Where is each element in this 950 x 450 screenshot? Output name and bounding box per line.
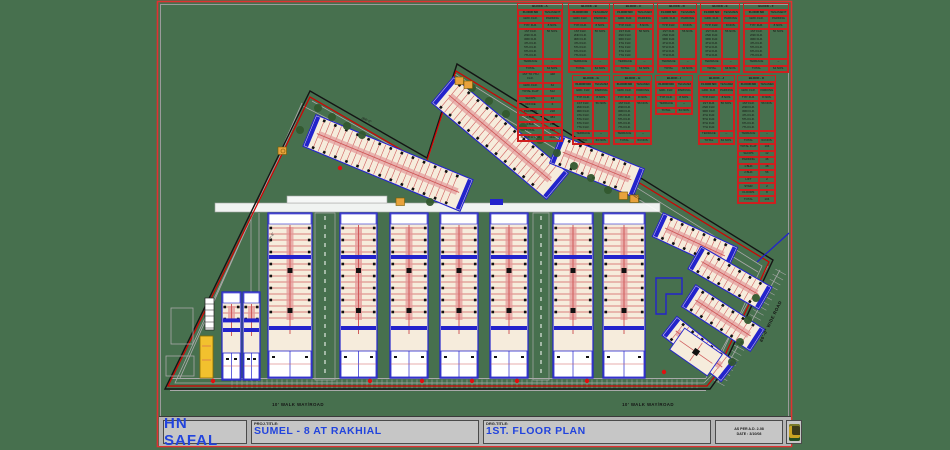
- title-block: HN SAFAL PROJ.TITLE: SUMEL - 8 AT RAKHIA…: [159, 416, 791, 446]
- emblem-icon: [789, 424, 800, 441]
- road-label: 10' WALK WAY/ROAD: [622, 402, 674, 407]
- tree-icon: [728, 358, 736, 366]
- tree-icon: [752, 294, 760, 302]
- tree-icon: [426, 198, 434, 206]
- building-row: [603, 213, 645, 378]
- tree-icon: [519, 123, 527, 131]
- project-title: SUMEL - 8 AT RAKHIAL: [252, 426, 478, 438]
- red-marker-dot: [368, 379, 372, 383]
- tree-icon: [736, 338, 744, 346]
- building-row: [222, 292, 241, 380]
- building-row: [243, 292, 260, 380]
- tree-icon: [296, 126, 304, 134]
- tree-icon: [314, 104, 322, 112]
- drawing-title: 1ST. FLOOR PLAN: [484, 426, 710, 438]
- brand-text: HN SAFAL: [164, 415, 246, 449]
- company-logo: HN SAFAL: [163, 420, 247, 444]
- tree-icon: [358, 131, 366, 139]
- building-row: [268, 213, 312, 378]
- buildings: [166, 77, 772, 382]
- project-title-cell: PROJ.TITLE: SUMEL - 8 AT RAKHIAL: [251, 420, 479, 444]
- building-row-diagonal: [550, 135, 645, 197]
- road-label: 10' WALK WAY/ROAD: [272, 402, 324, 407]
- building-row: [553, 213, 593, 378]
- road-label: 60'-0" WIDE ROAD: [759, 300, 783, 343]
- tree-icon: [587, 174, 595, 182]
- tree-icon: [536, 136, 544, 144]
- red-marker-dot: [211, 379, 215, 383]
- tree-icon: [744, 316, 752, 324]
- date-note: DATE : 3/10/08: [716, 432, 782, 437]
- drawing-title-cell: DRG.TITLE: 1ST. FLOOR PLAN: [483, 420, 711, 444]
- building-row: [490, 213, 528, 378]
- tree-icon: [485, 97, 493, 105]
- tree-icon: [570, 162, 578, 170]
- building-row: [390, 213, 428, 378]
- revision-note-cell: AS PER A.D. 2-08 DATE : 3/10/08: [715, 420, 783, 444]
- red-marker-dot: [470, 379, 474, 383]
- company-emblem: [786, 420, 802, 444]
- red-marker-dot: [515, 379, 519, 383]
- building-row: [340, 213, 377, 378]
- red-marker-dot: [662, 370, 666, 374]
- tree-icon: [553, 149, 561, 157]
- red-marker-dot: [420, 379, 424, 383]
- building-row: [440, 213, 478, 378]
- tree-icon: [604, 186, 612, 194]
- tree-icon: [502, 110, 510, 118]
- site-plan-drawing: 10' WALK WAY/ROAD10' WALK WAY/ROAD60'-0"…: [0, 0, 950, 450]
- tree-icon: [343, 122, 351, 130]
- red-marker-dot: [338, 166, 342, 170]
- red-marker-dot: [585, 379, 589, 383]
- cad-viewport[interactable]: 10' WALK WAY/ROAD10' WALK WAY/ROAD60'-0"…: [0, 0, 950, 450]
- tree-icon: [328, 113, 336, 121]
- club-house-outline: [656, 278, 682, 314]
